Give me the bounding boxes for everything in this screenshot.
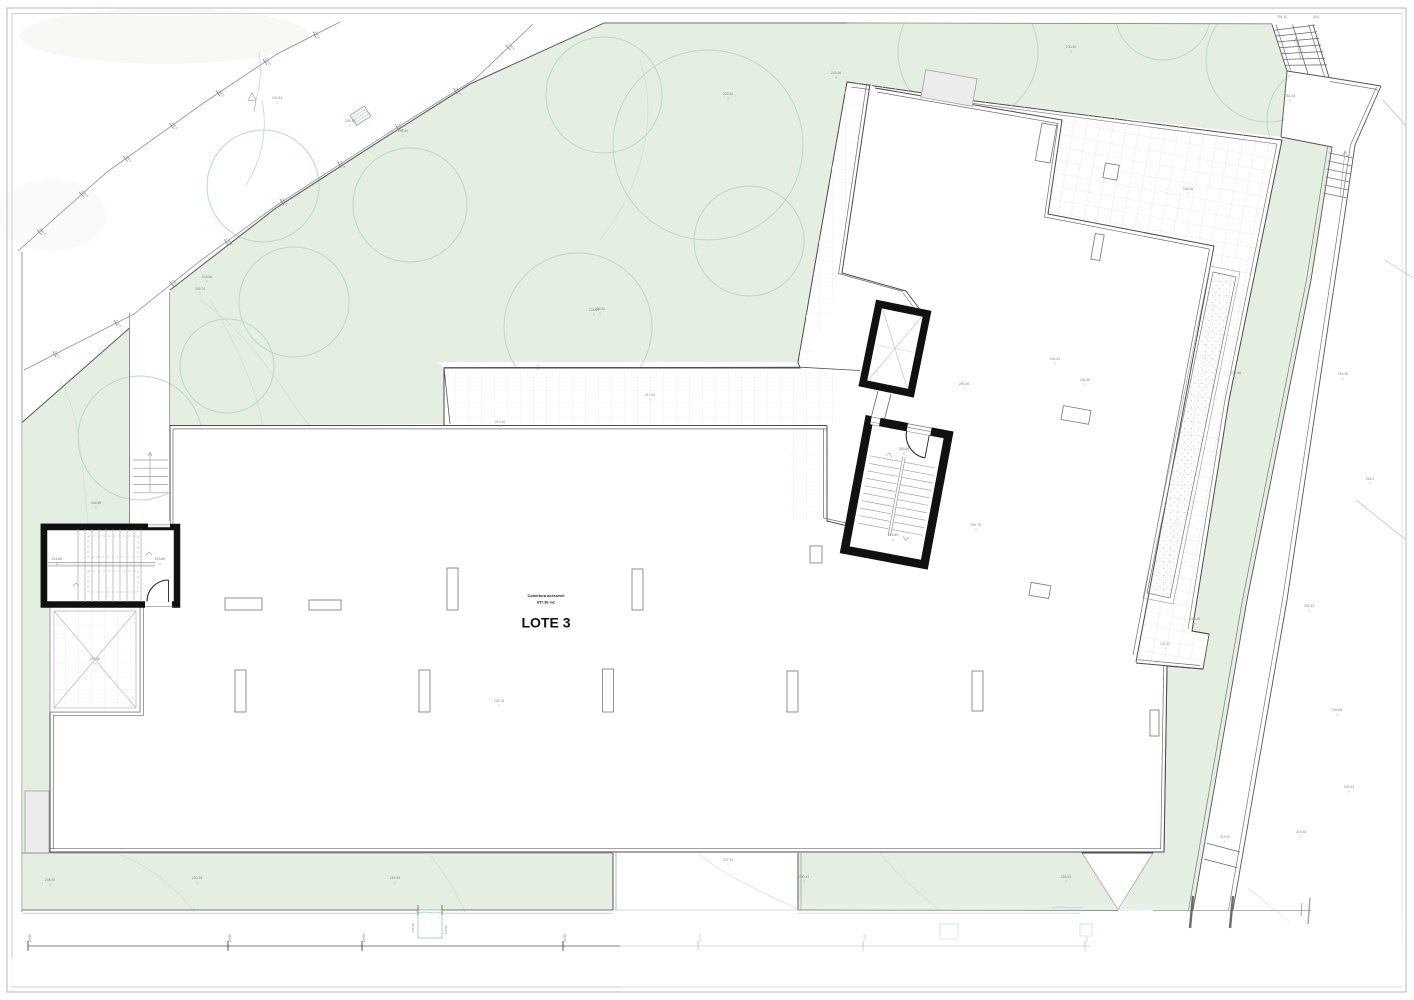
svg-text:213.69: 213.69 — [155, 557, 165, 561]
svg-text:248.40: 248.40 — [45, 878, 55, 882]
svg-text:216.50: 216.50 — [444, 925, 448, 935]
svg-text:215.46: 215.46 — [1296, 830, 1306, 834]
svg-text:217.44: 217.44 — [645, 393, 655, 397]
svg-text:230.44: 230.44 — [1050, 357, 1060, 361]
svg-text:254.10: 254.10 — [1277, 15, 1287, 19]
svg-text:246.46: 246.46 — [1231, 371, 1241, 375]
svg-text:236.46: 236.46 — [1183, 187, 1193, 191]
svg-text:243.46: 243.46 — [831, 71, 841, 75]
svg-text:215.69: 215.69 — [888, 533, 898, 537]
svg-text:254.33: 254.33 — [1285, 94, 1295, 98]
svg-text:250.33: 250.33 — [390, 876, 400, 880]
svg-text:213.48: 213.48 — [495, 420, 505, 424]
svg-text:Cobertura acessível: Cobertura acessível — [528, 593, 565, 598]
svg-text:234.00: 234.00 — [589, 308, 599, 312]
svg-text:253.33: 253.33 — [1061, 875, 1071, 879]
svg-text:45.6: 45.6 — [1313, 15, 1319, 19]
svg-text:24.60: 24.60 — [362, 934, 366, 942]
svg-text:253.0: 253.0 — [1366, 477, 1375, 481]
svg-text:LOTE 3: LOTE 3 — [521, 615, 570, 631]
svg-text:243.56: 243.56 — [202, 275, 212, 279]
svg-text:245.46: 245.46 — [1160, 642, 1170, 646]
svg-text:216.40: 216.40 — [411, 923, 415, 933]
svg-text:246.58: 246.58 — [91, 501, 101, 505]
svg-text:233.40: 233.40 — [1066, 45, 1076, 49]
svg-text:212.69: 212.69 — [52, 557, 62, 561]
svg-text:254.76: 254.76 — [971, 523, 981, 527]
svg-text:219.10: 219.10 — [1220, 835, 1230, 839]
svg-text:218.46: 218.46 — [1190, 617, 1200, 621]
svg-text:254.66: 254.66 — [1332, 708, 1342, 712]
svg-text:237.34: 237.34 — [723, 858, 733, 862]
svg-text:256.46: 256.46 — [1080, 378, 1090, 382]
svg-text:246.50: 246.50 — [398, 129, 408, 133]
svg-text:253.43: 253.43 — [1344, 785, 1354, 789]
svg-text:241.84: 241.84 — [272, 96, 282, 100]
svg-text:247.68: 247.68 — [90, 657, 100, 661]
svg-text:254.36: 254.36 — [1338, 372, 1348, 376]
svg-text:24.60: 24.60 — [228, 934, 232, 942]
svg-text:245.74: 245.74 — [195, 287, 205, 291]
svg-text:232.76: 232.76 — [494, 699, 504, 703]
svg-text:253.69: 253.69 — [899, 447, 909, 451]
svg-text:657.96 m2: 657.96 m2 — [537, 601, 555, 605]
svg-text:250.43: 250.43 — [799, 875, 809, 879]
svg-text:250.46: 250.46 — [959, 382, 969, 386]
svg-text:253.43: 253.43 — [1304, 604, 1314, 608]
svg-text:24.60: 24.60 — [563, 934, 567, 942]
svg-text:24.60: 24.60 — [28, 934, 32, 942]
svg-text:250.35: 250.35 — [192, 876, 202, 880]
svg-text:246.38: 246.38 — [345, 119, 355, 123]
svg-text:233.40: 233.40 — [723, 92, 733, 96]
